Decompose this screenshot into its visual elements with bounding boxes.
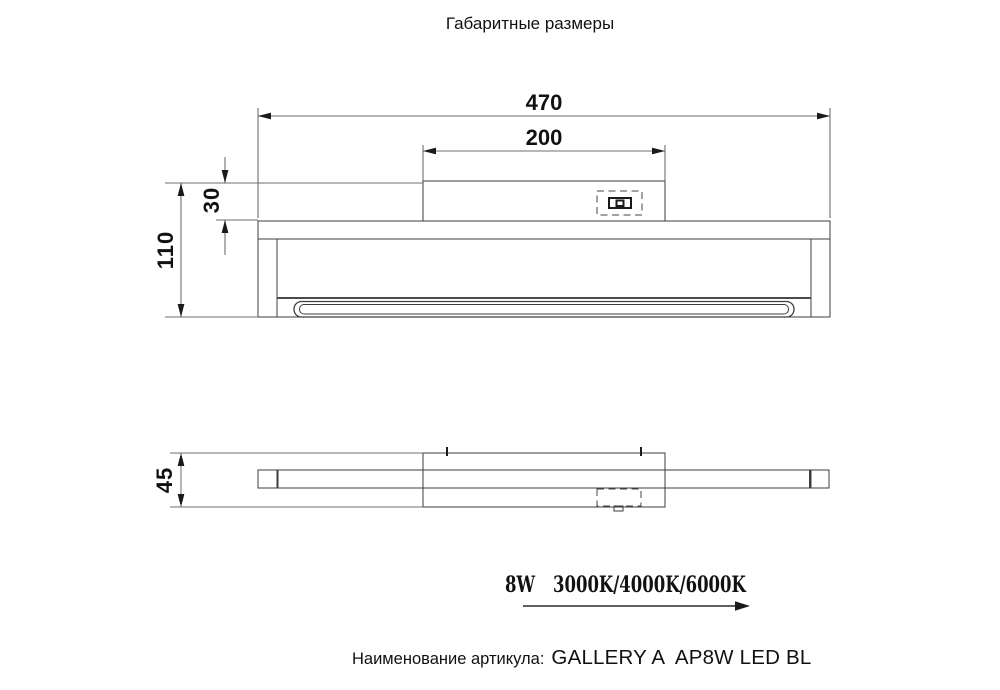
top-right-endcap xyxy=(811,470,829,488)
front-right-wall xyxy=(811,239,830,317)
article-caption-label: Наименование артикула: xyxy=(352,650,544,669)
article-caption: Наименование артикула: GALLERY A AP8W LE… xyxy=(352,646,811,670)
drawing-canvas: Габаритные размеры 470 200 30 110 45 8W … xyxy=(0,0,1000,690)
top-junction-box-dashed xyxy=(597,489,641,506)
top-mounting-plate xyxy=(423,453,665,507)
front-dimensions xyxy=(165,108,830,317)
front-led-tube xyxy=(294,302,794,318)
top-view xyxy=(170,447,829,511)
page-title: Габаритные размеры xyxy=(330,14,730,34)
dim-label-45: 45 xyxy=(154,440,176,520)
front-left-wall xyxy=(258,239,277,317)
spec-arrow xyxy=(523,601,750,610)
front-connector-icon xyxy=(609,198,631,208)
spec-color-temps: 3000K/4000K/6000K xyxy=(553,572,746,598)
spec-text: 8W 3000K/4000K/6000K xyxy=(505,572,746,598)
dim-110 xyxy=(178,183,185,317)
dim-label-470: 470 xyxy=(504,92,584,114)
spec-power: 8W xyxy=(505,572,535,598)
dim-label-110: 110 xyxy=(155,210,177,290)
front-view xyxy=(258,181,830,317)
dim-200 xyxy=(423,145,665,181)
dim-label-30: 30 xyxy=(201,160,223,240)
dim-label-200: 200 xyxy=(504,127,584,149)
top-left-endcap xyxy=(258,470,277,488)
drawing-linework xyxy=(0,0,1000,690)
front-top-bar xyxy=(258,221,830,239)
dim-45 xyxy=(170,453,423,507)
article-caption-value: GALLERY A AP8W LED BL xyxy=(551,646,811,670)
front-junction-box-dashed xyxy=(597,191,642,215)
